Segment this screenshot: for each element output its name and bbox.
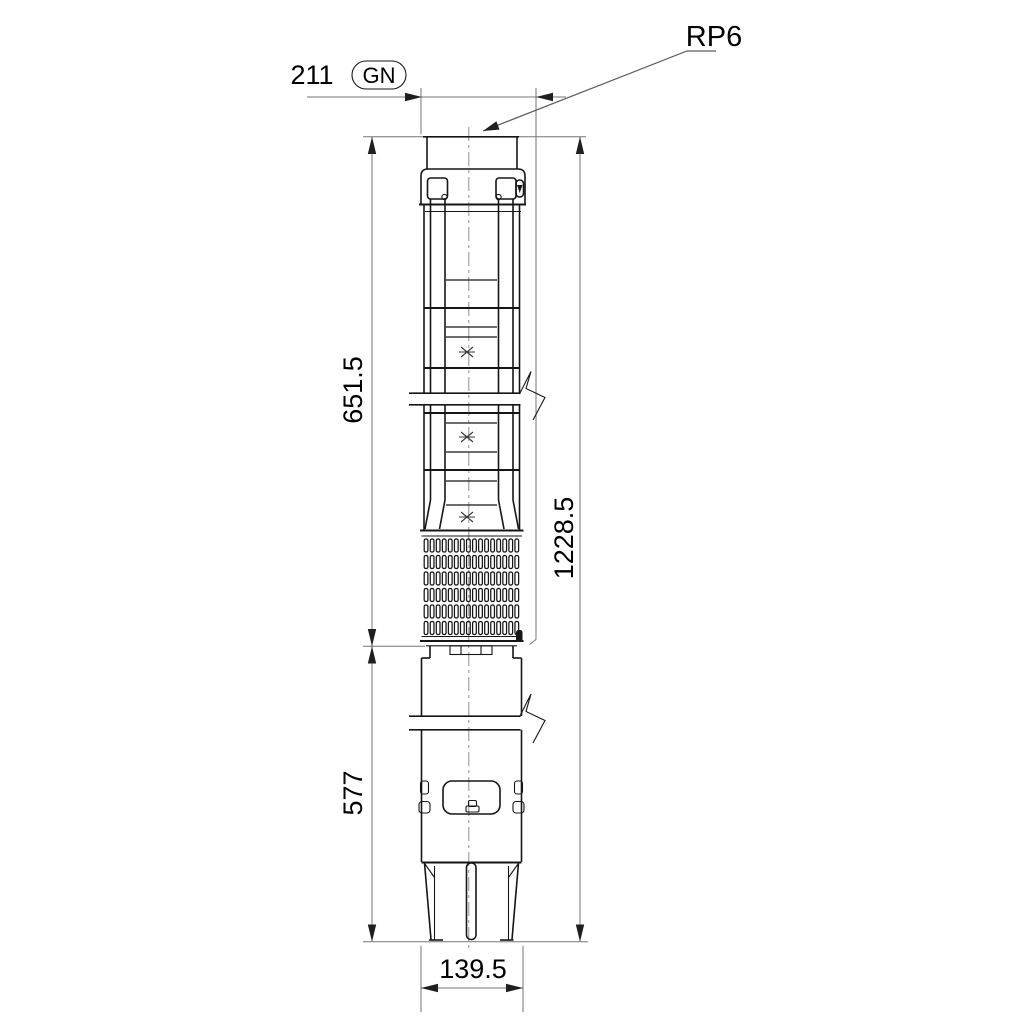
- cable-entry: [516, 630, 523, 642]
- break-symbols: [409, 372, 545, 744]
- pump-head: [419, 137, 526, 212]
- pump-length-dimension: 651.5: [338, 356, 368, 424]
- suction-strainer: [420, 531, 524, 643]
- impeller-stage-marks: [459, 347, 475, 522]
- technical-drawing-canvas: 211 GN RP6 651.5 1228.5 577 139.5: [0, 0, 1024, 1024]
- motor-cable-guard-plate: [443, 781, 500, 814]
- rp6-leader-arrow: [483, 121, 500, 131]
- zigzag-break-icon: [520, 372, 546, 421]
- motor-end-cap: [422, 863, 522, 941]
- rp6-connection-label: RP6: [686, 21, 742, 53]
- rp6-leader-line: [483, 51, 716, 131]
- motor-section: [419, 646, 524, 862]
- total-length-dimension: 1228.5: [549, 497, 579, 580]
- pump-drawing: 211 GN RP6 651.5 1228.5 577 139.5: [0, 0, 1024, 1024]
- diameter-dimension: 139.5: [439, 954, 507, 984]
- pump-bowls: [424, 204, 520, 530]
- motor-length-dimension: 577: [338, 770, 368, 815]
- gn-balloon-label: GN: [363, 63, 396, 88]
- cable-guard-straps: [425, 178, 519, 529]
- top-width-dimension: 211: [290, 60, 333, 90]
- zigzag-break-icon: [520, 694, 546, 743]
